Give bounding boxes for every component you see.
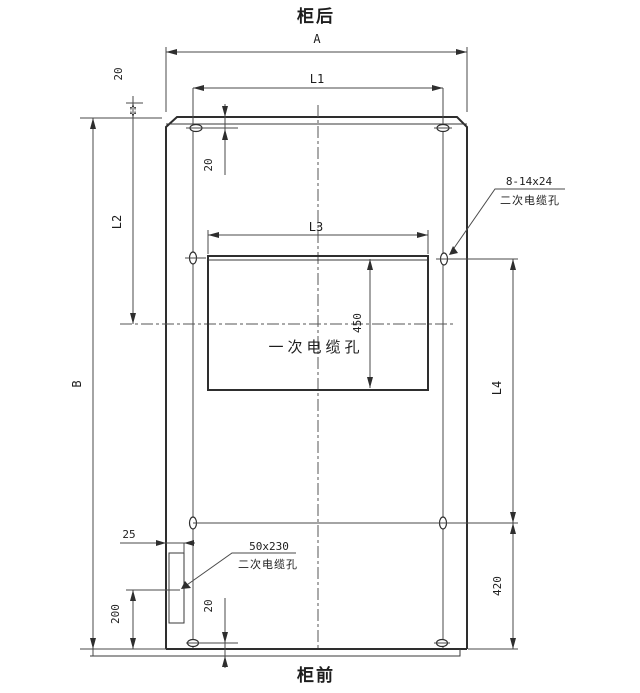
- callout-secondary-top-size: 8-14x24: [506, 175, 553, 188]
- cabinet-bottom-lip: [90, 649, 460, 656]
- dim-value-420: 420: [491, 576, 504, 596]
- dim-value-25: 25: [122, 528, 135, 541]
- dim-value-20-top: 20: [202, 158, 215, 171]
- label-cabinet-front: 柜前: [297, 665, 335, 686]
- callout-secondary-bottom-size: 50x230: [249, 540, 289, 553]
- label-cabinet-rear: 柜后: [297, 6, 335, 27]
- dim-label-a: A: [313, 32, 321, 46]
- dim-label-l2: L2: [110, 215, 124, 229]
- dim-arrows-vertical: [90, 103, 516, 667]
- leader-arrow-secondary-top: [449, 246, 458, 255]
- drawing-canvas: 柜后 柜前 A L1 L3 B L2 L4 20 20 20 450 420 2…: [0, 0, 640, 693]
- dim-label-b: B: [70, 380, 84, 387]
- dim-label-l1: L1: [310, 72, 324, 86]
- cabinet-outline: [166, 117, 467, 649]
- callout-secondary-top-name: 二次电缆孔: [500, 193, 560, 207]
- dim-value-200: 200: [109, 604, 122, 624]
- dim-label-l3: L3: [309, 220, 323, 234]
- callout-secondary-bottom-name: 二次电缆孔: [238, 557, 298, 571]
- dim-value-450: 450: [351, 313, 364, 333]
- dim-value-20-top-left: 20: [112, 67, 125, 80]
- leader-arrow-secondary-bottom: [181, 581, 191, 589]
- dim-label-l4: L4: [490, 381, 504, 395]
- dim-value-20-bottom: 20: [202, 599, 215, 612]
- cabinet-base-drawing: 柜后 柜前 A L1 L3 B L2 L4 20 20 20 450 420 2…: [0, 0, 640, 693]
- label-primary-cable-hole: 一次电缆孔: [268, 338, 363, 356]
